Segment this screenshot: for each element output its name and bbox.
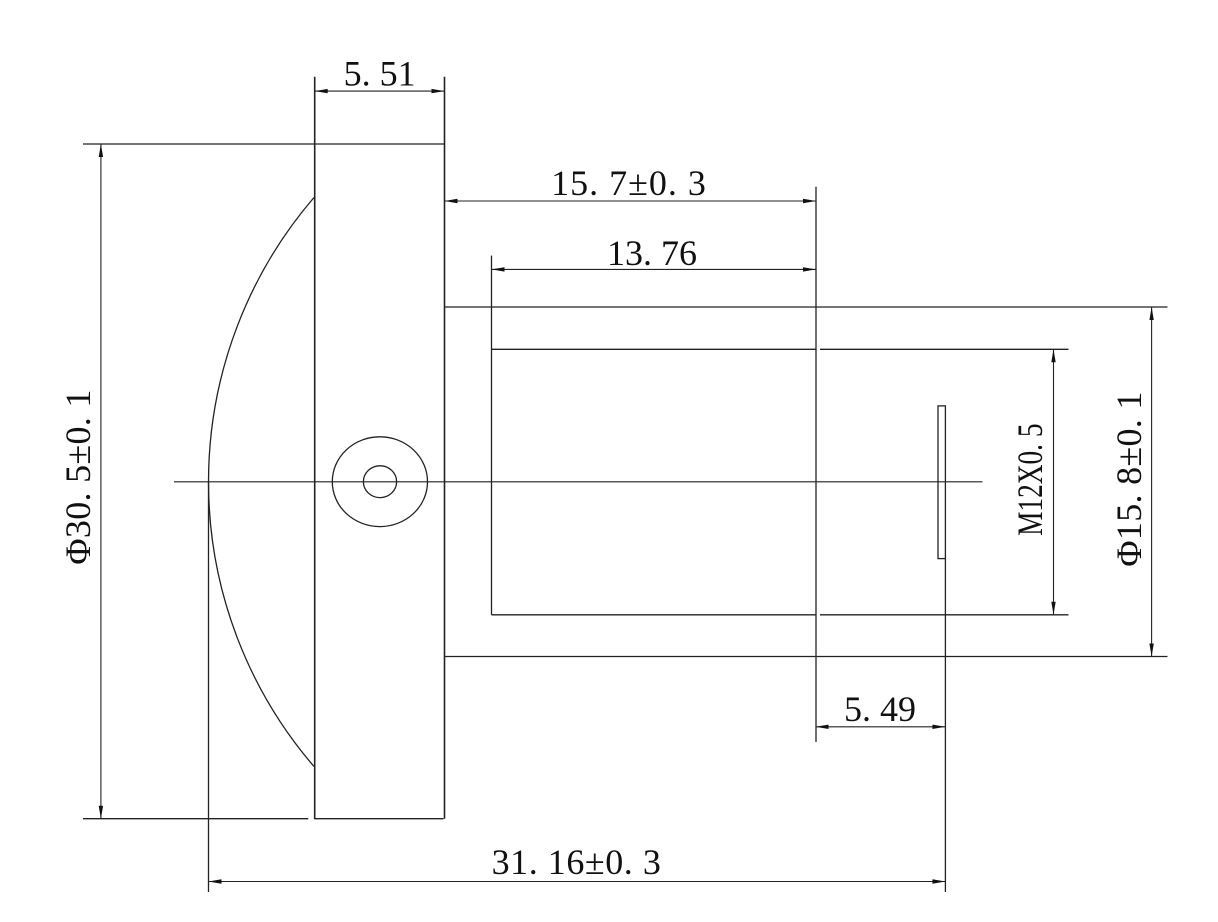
- svg-text:Φ30. 5±0. 1: Φ30. 5±0. 1: [58, 389, 98, 564]
- svg-text:M12X0. 5: M12X0. 5: [1010, 423, 1049, 535]
- svg-text:31. 16±0. 3: 31. 16±0. 3: [492, 842, 662, 882]
- svg-text:13. 76: 13. 76: [607, 233, 697, 273]
- svg-text:Φ15. 8±0. 1: Φ15. 8±0. 1: [1109, 391, 1149, 566]
- svg-text:5. 51: 5. 51: [344, 54, 416, 94]
- svg-text:15. 7±0. 3: 15. 7±0. 3: [551, 163, 707, 203]
- svg-text:5. 49: 5. 49: [844, 689, 916, 729]
